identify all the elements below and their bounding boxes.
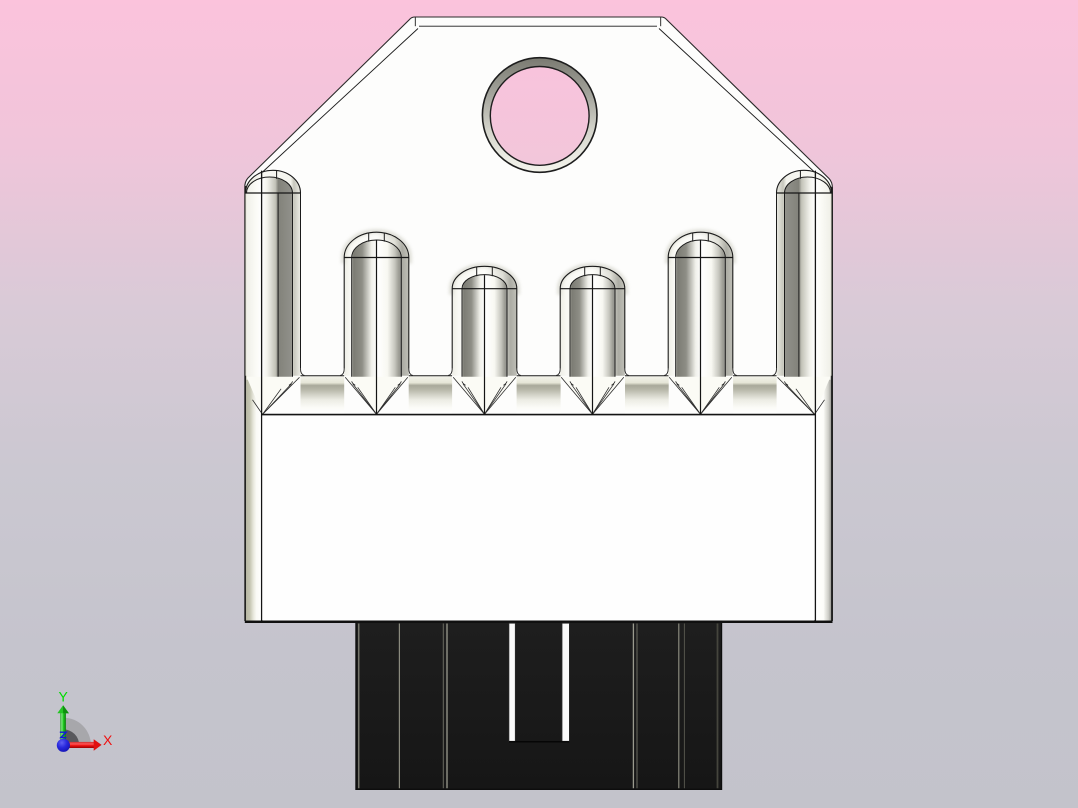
- svg-text:Y: Y: [59, 689, 69, 705]
- svg-text:X: X: [103, 732, 113, 748]
